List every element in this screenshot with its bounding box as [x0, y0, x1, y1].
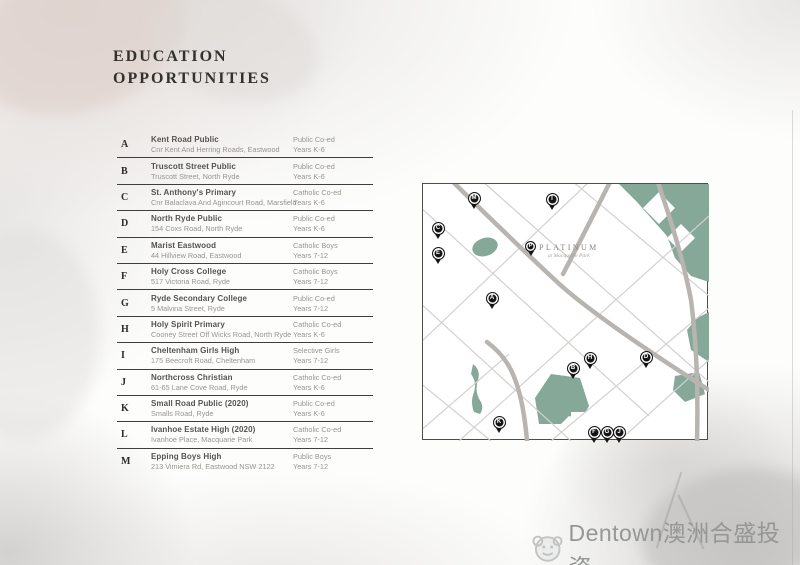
school-meta: Public Co-ed Years K-6	[293, 162, 373, 181]
school-letter: E	[117, 245, 151, 256]
table-row: C St. Anthony's Primary Cnr Balaclava An…	[117, 185, 373, 211]
map-pin: D	[640, 351, 653, 369]
map-pin-letter: C	[436, 225, 440, 231]
school-meta: Catholic Co-ed Years K-6	[293, 320, 373, 339]
table-row: L Ivanhoe Estate High (2020) Ivanhoe Pla…	[117, 422, 373, 448]
school-name: Small Road Public (2020)	[151, 399, 293, 408]
school-meta: Public Co-ed Years K-6	[293, 399, 373, 418]
table-row: D North Ryde Public 154 Coxs Road, North…	[117, 211, 373, 237]
school-address: Cnr Balaclava And Agincourt Road, Marsfi…	[151, 198, 293, 207]
school-years: Years K-6	[293, 172, 373, 181]
school-name: Ivanhoe Estate High (2020)	[151, 425, 293, 434]
map-pin-tail	[549, 205, 555, 210]
school-name: North Ryde Public	[151, 214, 293, 223]
school-name: Cheltenham Girls High	[151, 346, 293, 355]
school-years: Years 7-12	[293, 304, 373, 313]
school-type: Public Co-ed	[293, 294, 373, 303]
school-letter: B	[117, 166, 151, 177]
school-address: Ivanhoe Place, Macquarie Park	[151, 435, 293, 444]
school-years: Years 7-12	[293, 277, 373, 286]
school-address: Truscott Street, North Ryde	[151, 172, 293, 181]
school-name: Marist Eastwood	[151, 241, 293, 250]
school-info: Epping Boys High 213 Vimiera Rd, Eastwoo…	[151, 452, 293, 471]
school-meta: Catholic Co-ed Years 7-12	[293, 425, 373, 444]
map-pin: E	[432, 247, 445, 265]
map-pin: K	[493, 416, 506, 434]
brochure-page: EDUCATION OPPORTUNITIES A Kent Road Publ…	[0, 0, 800, 565]
table-row: G Ryde Secondary College 5 Malvina Stree…	[117, 290, 373, 316]
school-type: Catholic Boys	[293, 241, 373, 250]
school-address: 175 Beecroft Road, Cheltenham	[151, 356, 293, 365]
school-name: Kent Road Public	[151, 135, 293, 144]
brand-watermark-text: Dentown澳洲合盛投资	[568, 514, 800, 565]
school-type: Catholic Co-ed	[293, 425, 373, 434]
school-address: 61-65 Lane Cove Road, Ryde	[151, 383, 293, 392]
map-pin-letter: J	[617, 429, 620, 435]
map-pin-letter: D	[644, 354, 648, 360]
map-pin-tail	[570, 374, 576, 379]
table-row: J Northcross Christian 61-65 Lane Cove R…	[117, 370, 373, 396]
page-title: EDUCATION OPPORTUNITIES	[113, 46, 271, 89]
school-type: Catholic Boys	[293, 267, 373, 276]
school-years: Years 7-12	[293, 435, 373, 444]
map-pin: M	[468, 192, 481, 210]
table-row: K Small Road Public (2020) Smalls Road, …	[117, 396, 373, 422]
map-pin-tail	[591, 438, 597, 443]
school-letter: I	[117, 350, 151, 361]
school-letter: F	[117, 271, 151, 282]
school-name: Holy Cross College	[151, 267, 293, 276]
school-meta: Public Co-ed Years 7-12	[293, 294, 373, 313]
school-years: Years K-6	[293, 224, 373, 233]
development-pin: P	[525, 241, 536, 257]
table-row: A Kent Road Public Cnr Kent And Herring …	[117, 132, 373, 158]
table-row: B Truscott Street Public Truscott Street…	[117, 158, 373, 184]
school-address: 213 Vimiera Rd, Eastwood NSW 2122	[151, 462, 293, 471]
school-name: Epping Boys High	[151, 452, 293, 461]
map-pin-letter: B	[571, 365, 575, 371]
school-type: Public Co-ed	[293, 162, 373, 171]
school-info: Ryde Secondary College 5 Malvina Street,…	[151, 294, 293, 313]
map-pin-letter: E	[436, 250, 440, 256]
school-address: Cooney Street Off Wicks Road, North Ryde	[151, 330, 293, 339]
school-years: Years 7-12	[293, 356, 373, 365]
school-info: St. Anthony's Primary Cnr Balaclava And …	[151, 188, 293, 207]
map-pin-tail	[471, 204, 477, 209]
school-meta: Catholic Boys Years 7-12	[293, 241, 373, 260]
map-graphic	[423, 184, 709, 441]
map-pin: H	[584, 352, 597, 370]
map-pin-tail	[496, 428, 502, 433]
school-type: Public Co-ed	[293, 214, 373, 223]
school-letter: M	[117, 456, 151, 467]
page-title-line2: OPPORTUNITIES	[113, 70, 271, 87]
map-pin-tail	[587, 364, 593, 369]
school-type: Catholic Co-ed	[293, 373, 373, 382]
school-letter: G	[117, 298, 151, 309]
table-row: H Holy Spirit Primary Cooney Street Off …	[117, 317, 373, 343]
development-text: PLATINUM at Macquarie Park	[539, 243, 599, 259]
table-row: M Epping Boys High 213 Vimiera Rd, Eastw…	[117, 449, 373, 475]
school-letter: K	[117, 403, 151, 414]
school-meta: Selective Girls Years 7-12	[293, 346, 373, 365]
school-info: Northcross Christian 61-65 Lane Cove Roa…	[151, 373, 293, 392]
school-meta: Catholic Boys Years 7-12	[293, 267, 373, 286]
map-pin-letter: F	[592, 429, 596, 435]
school-name: St. Anthony's Primary	[151, 188, 293, 197]
school-letter: L	[117, 429, 151, 440]
school-info: North Ryde Public 154 Coxs Road, North R…	[151, 214, 293, 233]
school-type: Catholic Co-ed	[293, 320, 373, 329]
school-type: Catholic Co-ed	[293, 188, 373, 197]
map-pin-tail	[616, 438, 622, 443]
school-info: Cheltenham Girls High 175 Beecroft Road,…	[151, 346, 293, 365]
school-info: Truscott Street Public Truscott Street, …	[151, 162, 293, 181]
map-pin: A	[486, 292, 499, 310]
map-pin-letter: K	[497, 419, 501, 425]
school-letter: A	[117, 139, 151, 150]
school-info: Small Road Public (2020) Smalls Road, Ry…	[151, 399, 293, 418]
table-row: I Cheltenham Girls High 175 Beecroft Roa…	[117, 343, 373, 369]
map-pin-tail	[643, 363, 649, 368]
school-address: 44 Hillview Road, Eastwood	[151, 251, 293, 260]
school-address: 5 Malvina Street, Ryde	[151, 304, 293, 313]
school-address: 154 Coxs Road, North Ryde	[151, 224, 293, 233]
school-years: Years 7-12	[293, 251, 373, 260]
school-address: 517 Victoria Road, Ryde	[151, 277, 293, 286]
map-pin-tail	[489, 304, 495, 309]
school-type: Public Co-ed	[293, 399, 373, 408]
table-row: F Holy Cross College 517 Victoria Road, …	[117, 264, 373, 290]
map-pin-letter: M	[472, 195, 477, 201]
map-pin: C	[432, 222, 445, 240]
page-title-line1: EDUCATION	[113, 48, 228, 65]
school-name: Holy Spirit Primary	[151, 320, 293, 329]
school-info: Kent Road Public Cnr Kent And Herring Ro…	[151, 135, 293, 154]
map-pin-letter: G	[605, 429, 610, 435]
school-years: Years 7-12	[293, 462, 373, 471]
school-type: Public Boys	[293, 452, 373, 461]
school-letter: D	[117, 218, 151, 229]
school-years: Years K-6	[293, 145, 373, 154]
school-type: Selective Girls	[293, 346, 373, 355]
map-pin: I	[546, 193, 559, 211]
map-pin-tail	[435, 234, 441, 239]
school-years: Years K-6	[293, 409, 373, 418]
school-years: Years K-6	[293, 198, 373, 207]
development-marker: P PLATINUM at Macquarie Park	[525, 241, 599, 259]
school-meta: Catholic Co-ed Years K-6	[293, 373, 373, 392]
school-meta: Catholic Co-ed Years K-6	[293, 188, 373, 207]
school-meta: Public Co-ed Years K-6	[293, 135, 373, 154]
development-tagline: at Macquarie Park	[548, 253, 590, 259]
school-meta: Public Co-ed Years K-6	[293, 214, 373, 233]
school-info: Holy Spirit Primary Cooney Street Off Wi…	[151, 320, 293, 339]
school-years: Years K-6	[293, 330, 373, 339]
location-map: P PLATINUM at Macquarie Park M I	[422, 183, 708, 440]
map-pin-letter: I	[551, 196, 553, 202]
map-pin: B	[567, 362, 580, 380]
school-years: Years K-6	[293, 383, 373, 392]
school-address: Cnr Kent And Herring Roads, Eastwood	[151, 145, 293, 154]
school-name: Northcross Christian	[151, 373, 293, 382]
school-letter: C	[117, 192, 151, 203]
school-meta: Public Boys Years 7-12	[293, 452, 373, 471]
koala-logo-icon	[530, 531, 563, 565]
school-info: Marist Eastwood 44 Hillview Road, Eastwo…	[151, 241, 293, 260]
school-address: Smalls Road, Ryde	[151, 409, 293, 418]
school-letter: H	[117, 324, 151, 335]
development-name: PLATINUM	[539, 243, 599, 252]
school-info: Ivanhoe Estate High (2020) Ivanhoe Place…	[151, 425, 293, 444]
school-name: Truscott Street Public	[151, 162, 293, 171]
map-pin-tail	[604, 438, 610, 443]
brand-watermark: Dentown澳洲合盛投资	[530, 514, 800, 565]
floral-petal	[0, 230, 100, 440]
school-name: Ryde Secondary College	[151, 294, 293, 303]
table-row: E Marist Eastwood 44 Hillview Road, East…	[117, 238, 373, 264]
school-list: A Kent Road Public Cnr Kent And Herring …	[117, 132, 373, 475]
school-type: Public Co-ed	[293, 135, 373, 144]
school-letter: J	[117, 377, 151, 388]
edge-texture-line	[792, 110, 793, 565]
school-info: Holy Cross College 517 Victoria Road, Ry…	[151, 267, 293, 286]
development-pin-letter: P	[529, 244, 533, 250]
map-pin-tail	[435, 259, 441, 264]
map-pin: F	[588, 426, 601, 444]
map-pin-letter: H	[588, 355, 592, 361]
development-pin-tail	[528, 251, 534, 256]
map-pin: J	[613, 426, 626, 444]
map-pin-letter: A	[490, 295, 494, 301]
